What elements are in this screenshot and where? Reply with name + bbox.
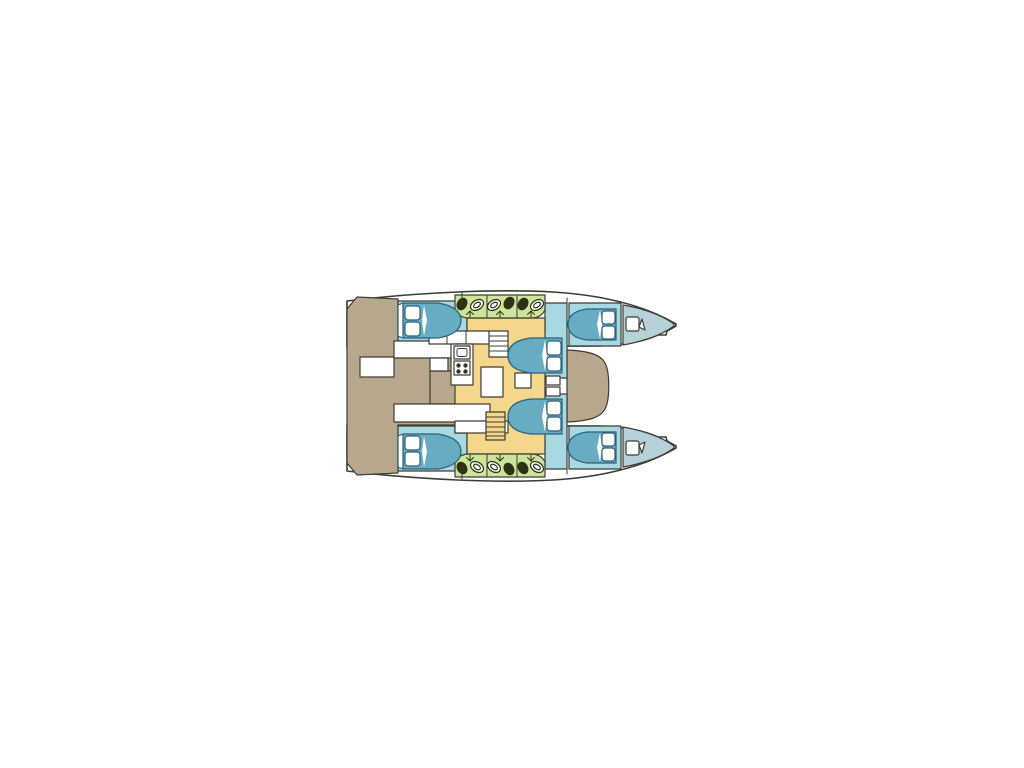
mid-cabin-shelf bbox=[546, 387, 560, 396]
pillow bbox=[602, 433, 615, 446]
pillow bbox=[602, 448, 615, 461]
foredeck bbox=[567, 350, 609, 422]
bed-headboard bbox=[398, 434, 403, 469]
burner bbox=[464, 370, 467, 373]
page-background bbox=[0, 0, 1024, 768]
burner bbox=[457, 370, 460, 373]
stove-burners-icon bbox=[454, 361, 470, 375]
galley-appliances bbox=[454, 346, 470, 375]
cockpit-bench-stbd bbox=[394, 404, 490, 422]
pillow bbox=[405, 436, 420, 450]
salon-cabinet bbox=[515, 373, 531, 388]
pillow bbox=[602, 326, 615, 339]
pillow bbox=[602, 311, 615, 324]
salon-sideboard bbox=[430, 358, 448, 371]
mid-cabin-shelf bbox=[546, 376, 560, 385]
burner bbox=[464, 364, 467, 367]
pillow bbox=[547, 417, 561, 431]
bow-berth-icon bbox=[626, 441, 639, 455]
pillow bbox=[547, 357, 561, 371]
salon-table bbox=[481, 367, 503, 397]
burner bbox=[457, 364, 460, 367]
pillow bbox=[405, 452, 420, 466]
pillow bbox=[547, 401, 561, 415]
bow-berth-icon bbox=[626, 317, 639, 331]
catamaran-floor-plan bbox=[0, 0, 1024, 768]
companionway-stairs-icon bbox=[489, 331, 508, 357]
pillow bbox=[405, 322, 420, 336]
bed-headboard bbox=[398, 303, 403, 338]
pillow bbox=[405, 306, 420, 320]
pillow bbox=[547, 341, 561, 355]
galley-sink-icon bbox=[454, 346, 470, 359]
cockpit-table bbox=[360, 357, 394, 377]
